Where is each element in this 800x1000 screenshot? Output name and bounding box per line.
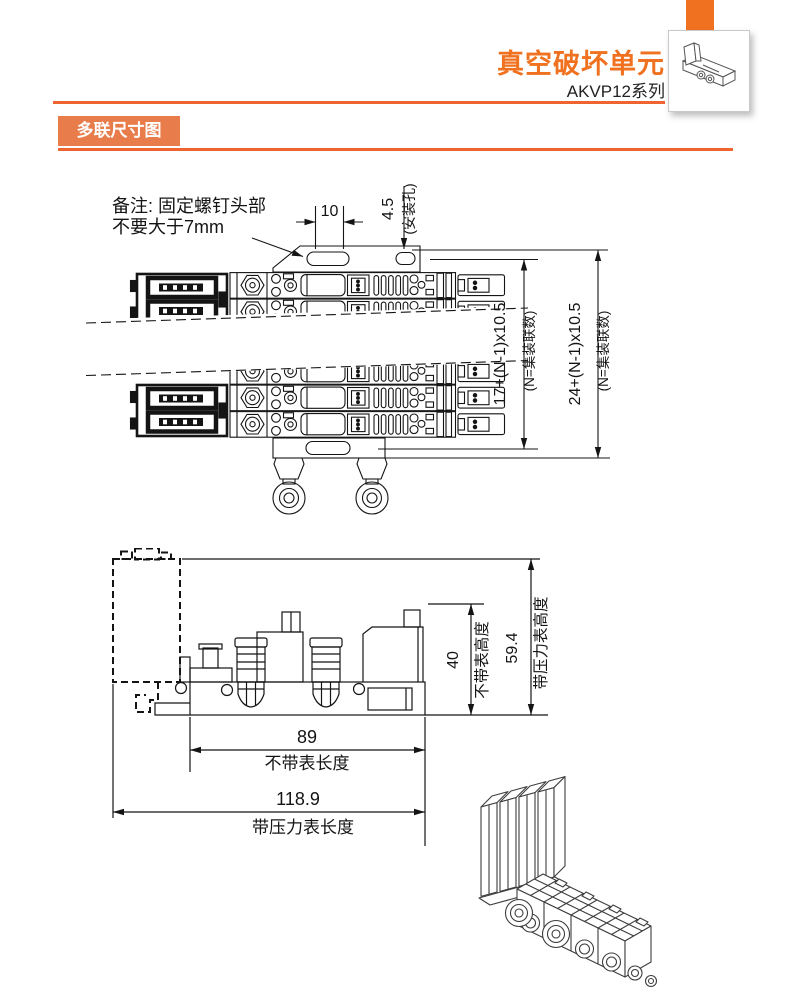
dim-pitch-inner-value: 17+(N-1)x10.5: [492, 303, 509, 406]
series-subtitle: AKVP12系列: [567, 77, 665, 102]
dim-pitch-inner-note: (N=集装联数): [522, 311, 537, 392]
product-thumbnail-drawing: [669, 31, 747, 109]
corner-ribbon: [686, 0, 714, 30]
page-title: 真空破坏单元: [497, 42, 665, 81]
dim-height-with-gauge-value: 59.4: [504, 632, 521, 663]
product-thumbnail-box: [668, 30, 750, 112]
dim-pitch-outer-note: (N=集装联数): [596, 311, 611, 392]
mounting-slot: [307, 252, 349, 266]
dim-length-no-gauge-label: 不带表长度: [265, 754, 350, 773]
phantom-unit-outline: [113, 549, 180, 713]
dim-mount-hole-label: (安装孔): [401, 183, 417, 234]
screw-note-line2: 不要大于7mm: [112, 217, 224, 237]
section-label: 多联尺寸图: [58, 116, 180, 146]
dim-pitch-outer-value: 24+(N-1)x10.5: [567, 303, 584, 406]
dim-height-no-gauge-label: 不带表高度: [473, 621, 491, 699]
iso-bottom-ports: [628, 966, 657, 987]
push-in-fitting-left: [273, 458, 305, 514]
screw-note-leader: [252, 238, 303, 257]
push-in-fitting-right: [356, 458, 388, 514]
isometric-product-drawing: [455, 762, 775, 1000]
section-rule: [58, 148, 733, 151]
top-end-plate: [273, 246, 420, 272]
dim-height-no-gauge-value: 40: [445, 651, 462, 669]
dim-length-with-gauge-value: 118.9: [276, 789, 320, 809]
side-fitting-right: [310, 638, 342, 707]
station-rows-upper-group: [131, 273, 505, 325]
bottom-end-plate: [273, 438, 385, 458]
dim-height-with-gauge-label: 带压力表高度: [532, 596, 550, 689]
side-view-body: [155, 610, 425, 715]
station-rows-lower-group: [131, 359, 505, 438]
mounting-hole: [396, 253, 415, 265]
dim-length-no-gauge-value: 89: [297, 727, 317, 747]
dim-slot-width-value: 10: [321, 203, 339, 220]
title-rule: [53, 101, 665, 104]
dim-height-with-gauge: [182, 559, 548, 715]
side-fitting-left: [235, 638, 267, 707]
dim-length-with-gauge-label: 带压力表长度: [252, 818, 354, 837]
multi-unit-top-view-drawing: 备注: 固定螺钉头部 不要大于7mm 10 4.5 (安装孔) 17+(N-1)…: [80, 170, 640, 555]
dim-mount-hole-value: 4.5: [380, 198, 397, 220]
screw-note-line1: 备注: 固定螺钉头部: [112, 196, 266, 216]
